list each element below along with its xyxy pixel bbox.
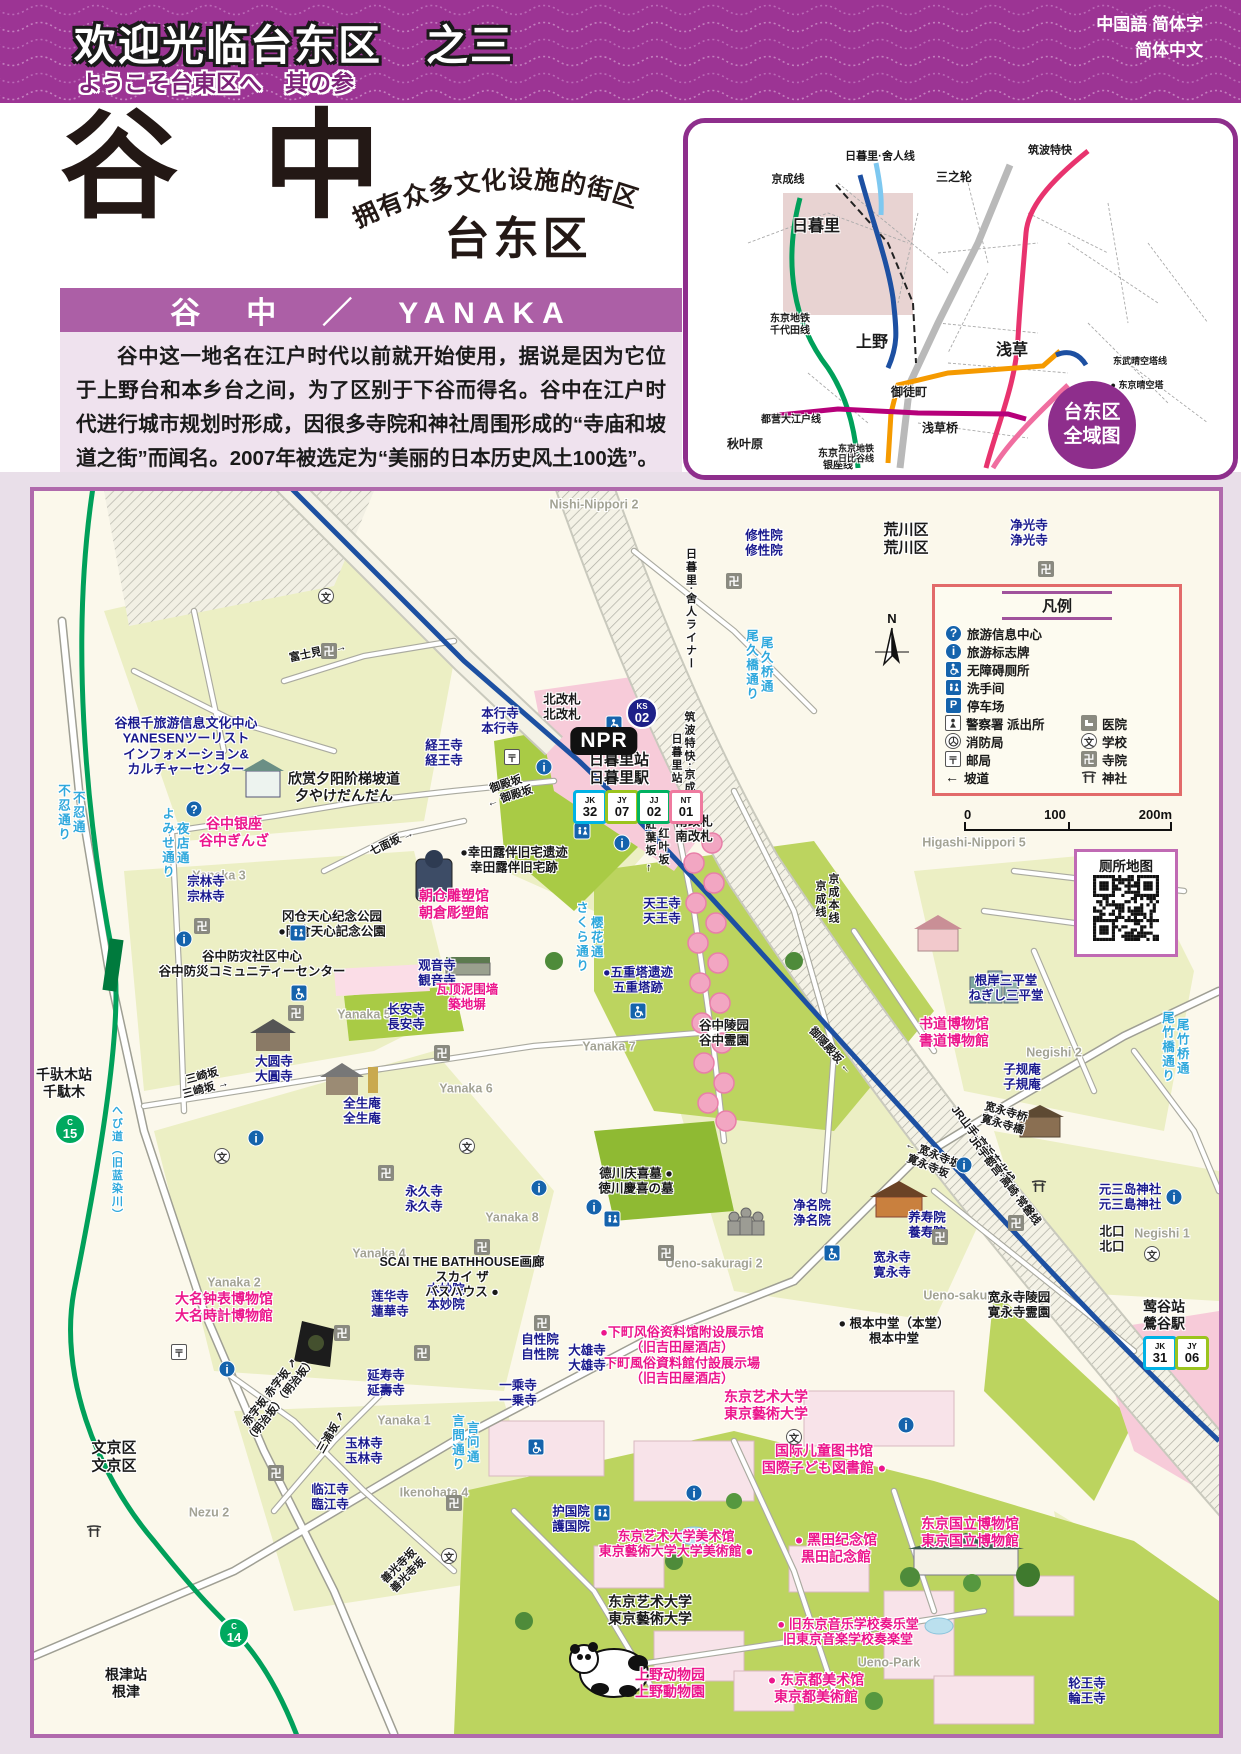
school-icon: 文 [459, 1138, 475, 1154]
map-label: 欣赏夕阳阶梯坡道 夕やけだんだん [288, 770, 400, 803]
map-label: へび道（旧蓝染川） [110, 1105, 123, 1222]
temple-icon: 卍 [334, 1325, 350, 1341]
map-label: 谷中防灾社区中心 谷中防災コミュニティーセンター [159, 949, 346, 979]
map-label: Yanaka 2 [207, 1276, 261, 1291]
map-label: 红叶坂 紅葉坂 ← [643, 818, 669, 875]
temple-icon: 卍 [288, 1005, 304, 1021]
map-label: 护国院 護国院 [552, 1504, 590, 1534]
map-label: 大圆寺 大圓寺 [255, 1054, 293, 1084]
restroom-icon [604, 1211, 621, 1228]
station-badge-KS02: KS02 [626, 697, 658, 729]
info-center-icon: ? [186, 801, 203, 818]
map-label: 长安寺 長安寺 [387, 1002, 425, 1032]
north-label: N [872, 611, 912, 626]
legend-row: ?旅游信息中心 [945, 624, 1169, 642]
station-badge-C14: C14 [218, 1617, 250, 1649]
map-label: ●五重塔遗迹 五重塔跡 [603, 965, 673, 995]
temple-icon: 卍 [658, 1245, 674, 1261]
map-label: 大名钟表博物馆 大名時計博物館 [175, 1290, 273, 1323]
scale-200m: 200m [1139, 807, 1172, 822]
legend-title: 凡例 [1002, 591, 1112, 620]
legend-rows: ?旅游信息中心i旅游标志牌无障碍厕所洗手间P停车场警察署 派出所医院消防局文学校… [945, 624, 1169, 786]
tree [515, 1612, 533, 1630]
temple-icon: 卍 [414, 1345, 430, 1361]
legend-row: 消防局文学校 [945, 732, 1169, 750]
map-label: Yanaka 7 [582, 1040, 636, 1055]
overview-label: 秋叶原 [727, 438, 763, 452]
school-icon: 文 [441, 1548, 457, 1564]
intro-paragraph: 谷中这一地名在江户时代以前就开始使用，据说是因为它位于上野台和本乡台之间，为了区… [76, 340, 666, 476]
map-label: 尾久桥通 尾久橋通り [743, 629, 773, 702]
temple-icon: 卍 [932, 1229, 948, 1245]
map-label: 东京艺术大学美术馆 東京藝術大学大学美術館 ● [599, 1529, 753, 1560]
map-label: 宗林寺 宗林寺 [187, 874, 225, 904]
overview-label: 都营大江户线 [761, 414, 821, 426]
map-label: 子规庵 子規庵 [1003, 1062, 1041, 1092]
station-badge-C15: C15 [54, 1113, 86, 1145]
overview-label: 东京地铁 千代田线 [770, 314, 810, 337]
intro-text-box: 谷中这一地名在江户时代以前就开始使用，据说是因为它位于上野台和本乡台之间，为了区… [60, 332, 682, 472]
info-sign-icon: i [586, 1199, 603, 1216]
station-badge-JK32: JK32 [573, 790, 607, 824]
map-label: 宽永寺陵园 寛永寺霊園 [988, 1290, 1051, 1320]
map-label: 樱花通 さくら通り [573, 901, 603, 974]
header-subtitle-japanese: ようこそ台東区へ 其の参 [78, 64, 354, 98]
overview-label: 御徒町 [891, 386, 927, 400]
temple-icon: 卍 [446, 1495, 462, 1511]
overview-label: 京成线 [772, 174, 805, 187]
map-label: 千驮木站 千駄木 [36, 1066, 92, 1099]
station-badge-JJ02: JJ02 [637, 790, 671, 824]
school-icon: 文 [318, 588, 334, 604]
scale-100: 100 [1044, 807, 1066, 822]
map-legend: 凡例 ?旅游信息中心i旅游标志牌无障碍厕所洗手间P停车场警察署 派出所医院消防局… [932, 584, 1182, 796]
info-sign-icon: i [176, 931, 193, 948]
map-label: 天王寺 天王寺 [643, 896, 681, 926]
map-label: 夜店通 よみせ通り [159, 807, 189, 880]
map-label: 荒川区 荒川区 [883, 521, 928, 556]
map-label: 京成本线 京成线 [813, 873, 839, 925]
map-label: 谷中银座 谷中ぎんざ [199, 815, 269, 848]
map-label: 轮王寺 輪王寺 [1068, 1676, 1106, 1706]
school-icon: 文 [214, 1148, 230, 1164]
nippori-station-code-badge: NPR [570, 727, 637, 755]
shrine-icon [1031, 1179, 1047, 1193]
overview-label: ● 东京晴空塔 [1111, 380, 1164, 390]
poster-page: 欢迎光临台东区 之三 ようこそ台東区へ 其の参 中国語 简体字 简体中文 谷 中… [0, 0, 1241, 1754]
info-sign-icon: i [898, 1417, 915, 1434]
scale-0: 0 [964, 807, 971, 822]
badge-line-1: 台东区 [1063, 401, 1120, 425]
temple-icon: 卍 [321, 643, 337, 659]
tree [545, 952, 563, 970]
map-label: 日暮里·舍人ライナー [684, 548, 697, 671]
header-banner: 欢迎光临台东区 之三 ようこそ台東区へ 其の参 中国語 简体字 简体中文 [0, 0, 1241, 103]
legend-row: 警察署 派出所医院 [945, 714, 1169, 732]
map-label: 修性院 修性院 [745, 528, 783, 558]
station-badge-JY06: JY06 [1175, 1336, 1209, 1370]
legend-row: P停车场 [945, 696, 1169, 714]
map-label: SCAI THE BATHHOUSE画廊 スカイ ザ バスハウス ● [379, 1255, 544, 1299]
map-label: 永久寺 永久寺 [405, 1184, 443, 1214]
tree [865, 1692, 883, 1710]
info-sign-icon: i [536, 759, 553, 776]
map-label: 国际儿童图书馆 国際子ども図書館 ● [762, 1442, 886, 1475]
accessible-toilet-icon [528, 1439, 545, 1456]
map-label: Nishi-Nippori 2 [550, 498, 639, 513]
info-sign-icon: i [956, 1157, 973, 1174]
language-line-1: 中国語 简体字 [1096, 12, 1203, 38]
info-sign-icon: i [531, 1180, 548, 1197]
map-label: 东京国立博物馆 東京国立博物館 [921, 1515, 1019, 1548]
map-label: 德川庆喜墓 ● 徳川慶喜の墓 [598, 1166, 673, 1196]
map-label: 净光寺 浄光寺 [1010, 518, 1048, 548]
map-label: 自性院 自性院 [521, 1332, 559, 1362]
district-name: 台东区 [408, 202, 628, 267]
overview-label: 日暮里·舍人线 [845, 151, 915, 164]
map-label: 文京区 文京区 [91, 1439, 136, 1474]
temple-icon: 卍 [378, 1165, 394, 1181]
shrine-icon [86, 1524, 102, 1538]
restroom-icon [574, 823, 591, 840]
overview-label: 日暮里 [792, 218, 840, 236]
info-sign-icon: i [686, 1485, 703, 1502]
post-office-icon: 〒 [504, 749, 520, 765]
legend-row: 无障碍厕所 [945, 660, 1169, 678]
tree [785, 952, 803, 970]
map-label: ● 旧东京音乐学校奏乐堂 旧東京音楽学校奏楽堂 [777, 1617, 918, 1648]
school-icon: 文 [786, 1429, 802, 1445]
accessible-toilet-icon [291, 985, 308, 1002]
map-label: 言问通 言問通り [449, 1414, 479, 1472]
language-line-2: 简体中文 [1096, 38, 1203, 64]
temple-icon: 卍 [268, 1465, 284, 1481]
map-label: Ueno-sakuragi 2 [665, 1257, 762, 1272]
restroom-icon [290, 925, 307, 942]
legend-row: 洗手间 [945, 678, 1169, 696]
map-label: 尾竹桥通 尾竹橋通り [1159, 1011, 1189, 1084]
tree [726, 1493, 742, 1509]
area-name-bar: 谷 中 ／ YANAKA [60, 288, 682, 332]
overview-map: 京成线日暮里·舍人线三之轮筑波特快日暮里东京地铁 千代田线上野浅草御徒町都营大江… [683, 118, 1238, 480]
temple-icon: 卍 [1008, 1215, 1024, 1231]
legend-row: ←坡道神社 [945, 768, 1169, 786]
temple-icon: 卍 [434, 1045, 450, 1061]
map-label: Negishi 2 [1026, 1046, 1082, 1061]
map-label: 延寿寺 延壽寺 [367, 1368, 405, 1398]
overview-label: 东京地铁 日比谷线 [838, 444, 874, 465]
overview-label: 浅草桥 [922, 422, 958, 436]
scale-bar: 0 100 200m [964, 807, 1172, 833]
info-sign-icon: i [614, 835, 631, 852]
map-label: ● 黑田纪念馆 黒田記念館 [795, 1531, 877, 1564]
map-label: 経王寺 経王寺 [425, 738, 463, 768]
map-label: Higashi-Nippori 5 [922, 836, 1025, 851]
map-label: 根岸三平堂 ねぎし三平堂 [968, 973, 1043, 1003]
map-label: 一乘寺 一乗寺 [499, 1378, 537, 1408]
map-label: ● 根本中堂（本堂） 根本中堂 [838, 1316, 949, 1346]
map-label: ● 东京都美术馆 東京都美術館 [768, 1671, 864, 1704]
map-label: ●幸田露伴旧宅遗迹 幸田露伴旧宅跡 [460, 845, 568, 875]
legend-row: 〒邮局卍寺院 [945, 750, 1169, 768]
overview-label: 三之轮 [936, 171, 972, 185]
info-sign-icon: i [219, 1361, 236, 1378]
map-label: 朝仓雕塑馆 朝倉彫塑館 [419, 887, 489, 920]
map-label: 谷中陵园 谷中霊園 [699, 1018, 749, 1048]
overview-label: 东武晴空塔线 [1113, 356, 1167, 366]
map-label: 不忍通 不忍通り [55, 784, 85, 842]
overview-label: 筑波特快 [1028, 145, 1072, 158]
map-label: 根津站 根津 [105, 1666, 147, 1699]
overview-label: 上野 [856, 334, 888, 352]
language-note: 中国語 简体字 简体中文 [1096, 12, 1203, 64]
map-label: 临江寺 臨江寺 [311, 1482, 349, 1512]
badge-line-2: 全域图 [1063, 425, 1120, 449]
map-label: 净名院 浄名院 [793, 1198, 831, 1228]
map-label: ●下町风俗资料馆附设展示馆 （旧吉田屋酒店） 下町風俗資料館付設展示場 （旧吉田… [600, 1324, 764, 1385]
map-label: Ueno-Park [858, 1656, 921, 1671]
toilet-map-qr-box: 厕所地图 [1074, 849, 1178, 957]
info-sign-icon: i [248, 1130, 265, 1147]
legend-row: i旅游标志牌 [945, 642, 1169, 660]
temple-icon: 卍 [534, 1315, 550, 1331]
restroom-icon [594, 1505, 611, 1522]
map-label: 莺谷站 鶯谷駅 [1143, 1298, 1185, 1331]
temple-icon: 卍 [726, 573, 742, 589]
map-label: 瓦顶泥围墙 築地塀 [436, 982, 499, 1012]
main-map: Nishi-Nippori 2荒川区 荒川区Higashi-Nippori 5Y… [30, 487, 1223, 1738]
map-label: 东京艺术大学 東京藝術大学 [724, 1388, 808, 1421]
temple-icon: 卍 [194, 918, 210, 934]
map-label: 元三岛神社 元三島神社 [1099, 1182, 1162, 1212]
map-label: Nezu 2 [189, 1506, 229, 1521]
temple-icon: 卍 [1038, 561, 1054, 577]
map-label: 北改札 北改札 [543, 692, 581, 722]
info-sign-icon: i [1166, 1189, 1183, 1206]
school-icon: 文 [1144, 1246, 1160, 1262]
map-label: Yanaka 6 [439, 1082, 493, 1097]
map-label: Yanaka 8 [485, 1211, 539, 1226]
station-badge-JY07: JY07 [605, 790, 639, 824]
post-office-icon: 〒 [171, 1344, 187, 1360]
map-label: 书道博物馆 書道博物館 [919, 1015, 989, 1048]
accessible-toilet-icon [824, 1245, 841, 1262]
qr-code [1093, 875, 1159, 941]
map-label: 玉林寺 玉林寺 [345, 1436, 383, 1466]
map-label: Yanaka 5 [337, 1008, 391, 1023]
map-label: 上野动物园 上野動物園 [635, 1666, 705, 1699]
jizo-statues-illustration [728, 1208, 764, 1235]
map-label: 北口 北口 [1099, 1224, 1124, 1254]
qr-title: 厕所地图 [1077, 855, 1175, 875]
map-label: 谷根千旅游信息文化中心 YANESENツーリスト インフォメーション& カルチャ… [114, 715, 257, 776]
station-badge-JK31: JK31 [1143, 1336, 1177, 1370]
map-label: 宽永寺 寛永寺 [873, 1250, 911, 1280]
map-label: 全生庵 全生庵 [343, 1096, 381, 1126]
map-label: Negishi 1 [1134, 1227, 1190, 1242]
map-label: 日暮里站 日暮里駅 [589, 751, 649, 786]
pond [925, 1618, 953, 1634]
accessible-toilet-icon [630, 1003, 647, 1020]
station-badge-NT01: NT01 [669, 790, 703, 824]
north-arrow: N [872, 611, 912, 677]
map-label: 本行寺 本行寺 [481, 706, 519, 736]
temple-icon: 卍 [474, 1239, 490, 1255]
map-label: Yanaka 1 [377, 1414, 431, 1429]
zentaizu-badge: 台东区 全域图 [1048, 381, 1136, 469]
map-label: 东京艺术大学 東京藝術大学 [608, 1593, 692, 1626]
overview-label: 浅草 [996, 342, 1028, 360]
